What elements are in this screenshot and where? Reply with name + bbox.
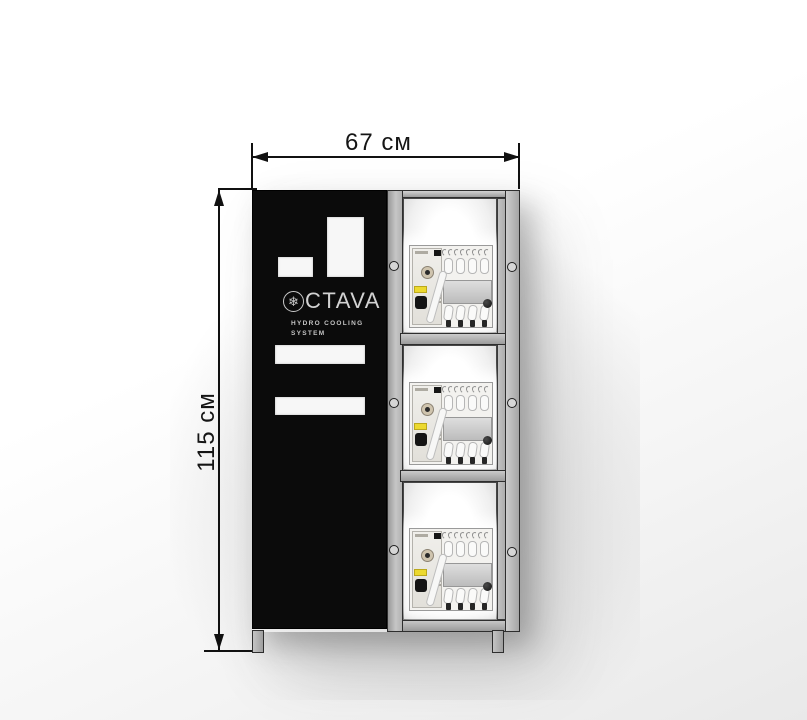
screw-icon xyxy=(389,398,399,408)
unit-round-port xyxy=(421,266,434,279)
width-extension-line-right xyxy=(518,143,520,189)
logo-text: CTAVA xyxy=(305,288,381,314)
nozzle-tip xyxy=(458,603,463,610)
unit-brand-mark xyxy=(415,534,428,537)
nozzle-tip xyxy=(446,603,451,610)
nozzle-tip xyxy=(470,320,475,327)
panel-slot-1 xyxy=(275,345,365,364)
width-extension-line-left xyxy=(251,143,253,189)
arrowhead-right-icon xyxy=(504,152,520,162)
nozzle-tip xyxy=(482,457,487,464)
unit-round-port xyxy=(421,403,434,416)
hose-clip-icon xyxy=(483,248,491,257)
bottom-hose xyxy=(455,441,466,458)
frame-right-post xyxy=(505,190,520,632)
top-hose xyxy=(456,395,465,411)
logo-subtitle-line1: HYDRO COOLING xyxy=(291,319,381,329)
top-hose xyxy=(480,258,489,274)
panel-slot-2 xyxy=(275,397,365,415)
arrowhead-down-icon xyxy=(214,634,224,650)
unit-warning-label xyxy=(414,423,427,430)
unit-brand-mark xyxy=(415,388,428,391)
top-hose xyxy=(456,258,465,274)
top-hose xyxy=(480,541,489,557)
unit-power-plug xyxy=(415,296,427,309)
top-hose xyxy=(468,395,477,411)
compartment-2 xyxy=(403,345,497,470)
top-hose xyxy=(456,541,465,557)
octava-logo: ❄ CTAVA HYDRO COOLING SYSTEM xyxy=(283,288,381,340)
bottom-hose xyxy=(467,587,478,604)
nozzle-tip xyxy=(470,457,475,464)
nozzle-tip xyxy=(446,457,451,464)
screw-icon xyxy=(507,262,517,272)
unit-power-plug xyxy=(415,433,427,446)
unit-knob xyxy=(483,582,492,591)
frame-top-rail xyxy=(387,190,520,198)
nozzle-tip xyxy=(446,320,451,327)
cooling-unit-1 xyxy=(409,245,493,328)
leg-right xyxy=(492,630,504,653)
top-hose xyxy=(468,541,477,557)
unit-brand-mark xyxy=(415,251,428,254)
bottom-hose xyxy=(467,441,478,458)
unit-knob xyxy=(483,299,492,308)
front-panel: ❄ CTAVA HYDRO COOLING SYSTEM xyxy=(252,190,387,629)
bottom-hose xyxy=(455,587,466,604)
width-dimension-label: 67 см xyxy=(345,129,412,157)
unit-round-port xyxy=(421,549,434,562)
nozzle-tip xyxy=(458,457,463,464)
unit-data-port xyxy=(434,533,441,539)
hose-clip-icon xyxy=(483,531,491,540)
shelf-rail-2 xyxy=(400,470,506,482)
cooling-cabinet: ❄ CTAVA HYDRO COOLING SYSTEM xyxy=(252,190,520,632)
screw-icon xyxy=(507,547,517,557)
bottom-hose xyxy=(467,304,478,321)
height-extension-line-bottom xyxy=(204,650,254,652)
unit-data-port xyxy=(434,387,441,393)
top-hose xyxy=(468,258,477,274)
arrowhead-left-icon xyxy=(252,152,268,162)
panel-cutout-small xyxy=(278,257,313,277)
top-hose xyxy=(480,395,489,411)
unit-knob xyxy=(483,436,492,445)
screw-icon xyxy=(389,545,399,555)
cooling-unit-2 xyxy=(409,382,493,465)
screw-icon xyxy=(389,261,399,271)
hose-clip-icon xyxy=(483,385,491,394)
bottom-hose xyxy=(455,304,466,321)
frame-mid-post xyxy=(387,190,403,632)
compartment-3 xyxy=(403,482,497,620)
compartment-1 xyxy=(403,198,497,333)
bottom-hose xyxy=(443,441,454,458)
leg-left xyxy=(252,630,264,653)
logo-subtitle-line2: SYSTEM xyxy=(291,329,381,339)
nozzle-tip xyxy=(470,603,475,610)
unit-warning-label xyxy=(414,569,427,576)
snowflake-icon: ❄ xyxy=(283,291,304,312)
dimensional-drawing: 67 см 115 см ❄ CTAVA HYDRO COOLING SYSTE… xyxy=(0,0,807,720)
screw-icon xyxy=(507,398,517,408)
bottom-hose xyxy=(443,587,454,604)
nozzle-tip xyxy=(458,320,463,327)
panel-cutout-large xyxy=(327,217,364,277)
arrowhead-up-icon xyxy=(214,190,224,206)
nozzle-tip xyxy=(482,320,487,327)
height-dimension-label: 115 см xyxy=(193,372,221,492)
shelf-rail-1 xyxy=(400,333,506,345)
cooling-unit-3 xyxy=(409,528,493,611)
nozzle-tip xyxy=(482,603,487,610)
unit-data-port xyxy=(434,250,441,256)
unit-warning-label xyxy=(414,286,427,293)
unit-power-plug xyxy=(415,579,427,592)
bottom-hose xyxy=(443,304,454,321)
